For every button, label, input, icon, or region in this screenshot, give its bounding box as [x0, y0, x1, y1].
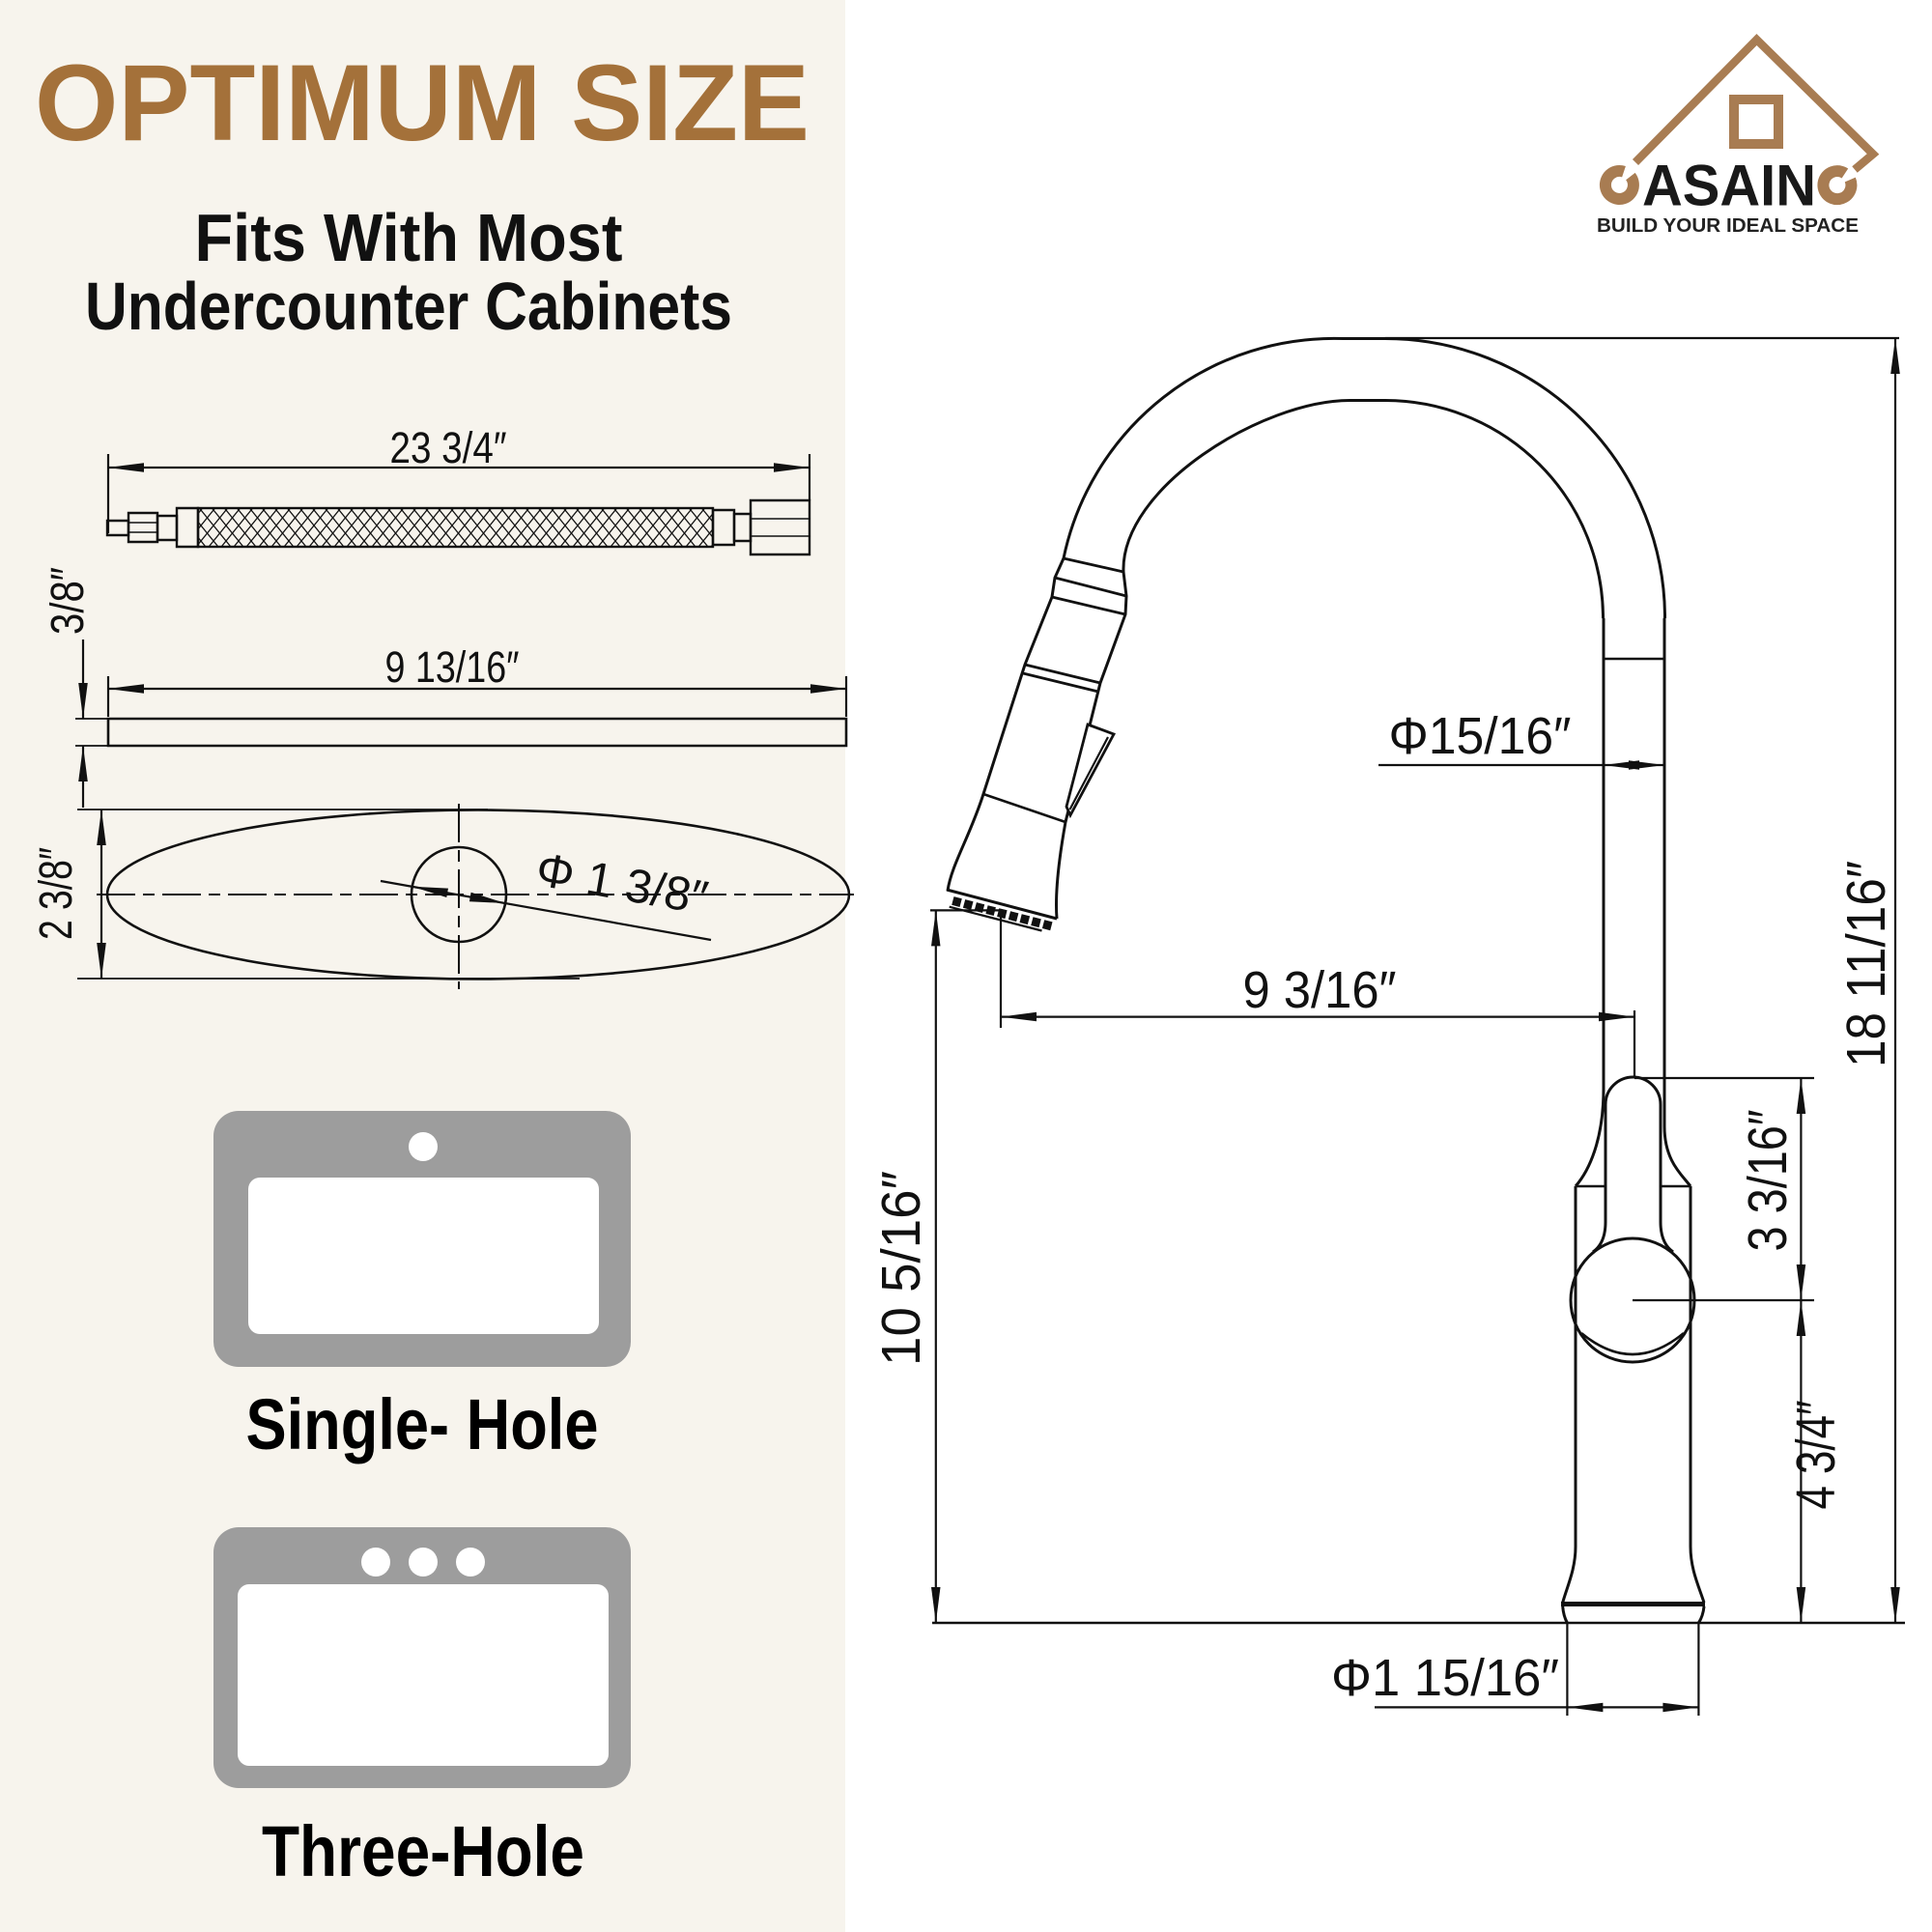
- svg-text:23 3/4″: 23 3/4″: [390, 423, 507, 472]
- svg-text:Single- Hole: Single- Hole: [246, 1384, 599, 1464]
- svg-text:3/8″: 3/8″: [43, 567, 94, 635]
- svg-text:4 3/4″: 4 3/4″: [1785, 1401, 1847, 1510]
- svg-text:3 3/16″: 3 3/16″: [1737, 1110, 1799, 1252]
- svg-text:ASAIN: ASAIN: [1642, 154, 1816, 218]
- svg-text:9 3/16″: 9 3/16″: [1243, 961, 1397, 1019]
- svg-text:9 13/16″: 9 13/16″: [385, 642, 520, 692]
- svg-text:Φ1 15/16″: Φ1 15/16″: [1331, 1649, 1559, 1707]
- svg-text:BUILD YOUR IDEAL SPACE: BUILD YOUR IDEAL SPACE: [1597, 215, 1859, 237]
- svg-text:18 11/16″: 18 11/16″: [1835, 861, 1897, 1067]
- svg-text:OPTIMUM SIZE: OPTIMUM SIZE: [35, 43, 810, 163]
- svg-text:Φ15/16″: Φ15/16″: [1389, 707, 1572, 765]
- svg-text:Fits With Most: Fits With Most: [195, 200, 623, 275]
- svg-text:Three-Hole: Three-Hole: [262, 1811, 584, 1891]
- svg-text:10 5/16″: 10 5/16″: [870, 1171, 932, 1366]
- svg-text:Undercounter Cabinets: Undercounter Cabinets: [85, 269, 732, 344]
- svg-text:2 3/8″: 2 3/8″: [31, 847, 82, 940]
